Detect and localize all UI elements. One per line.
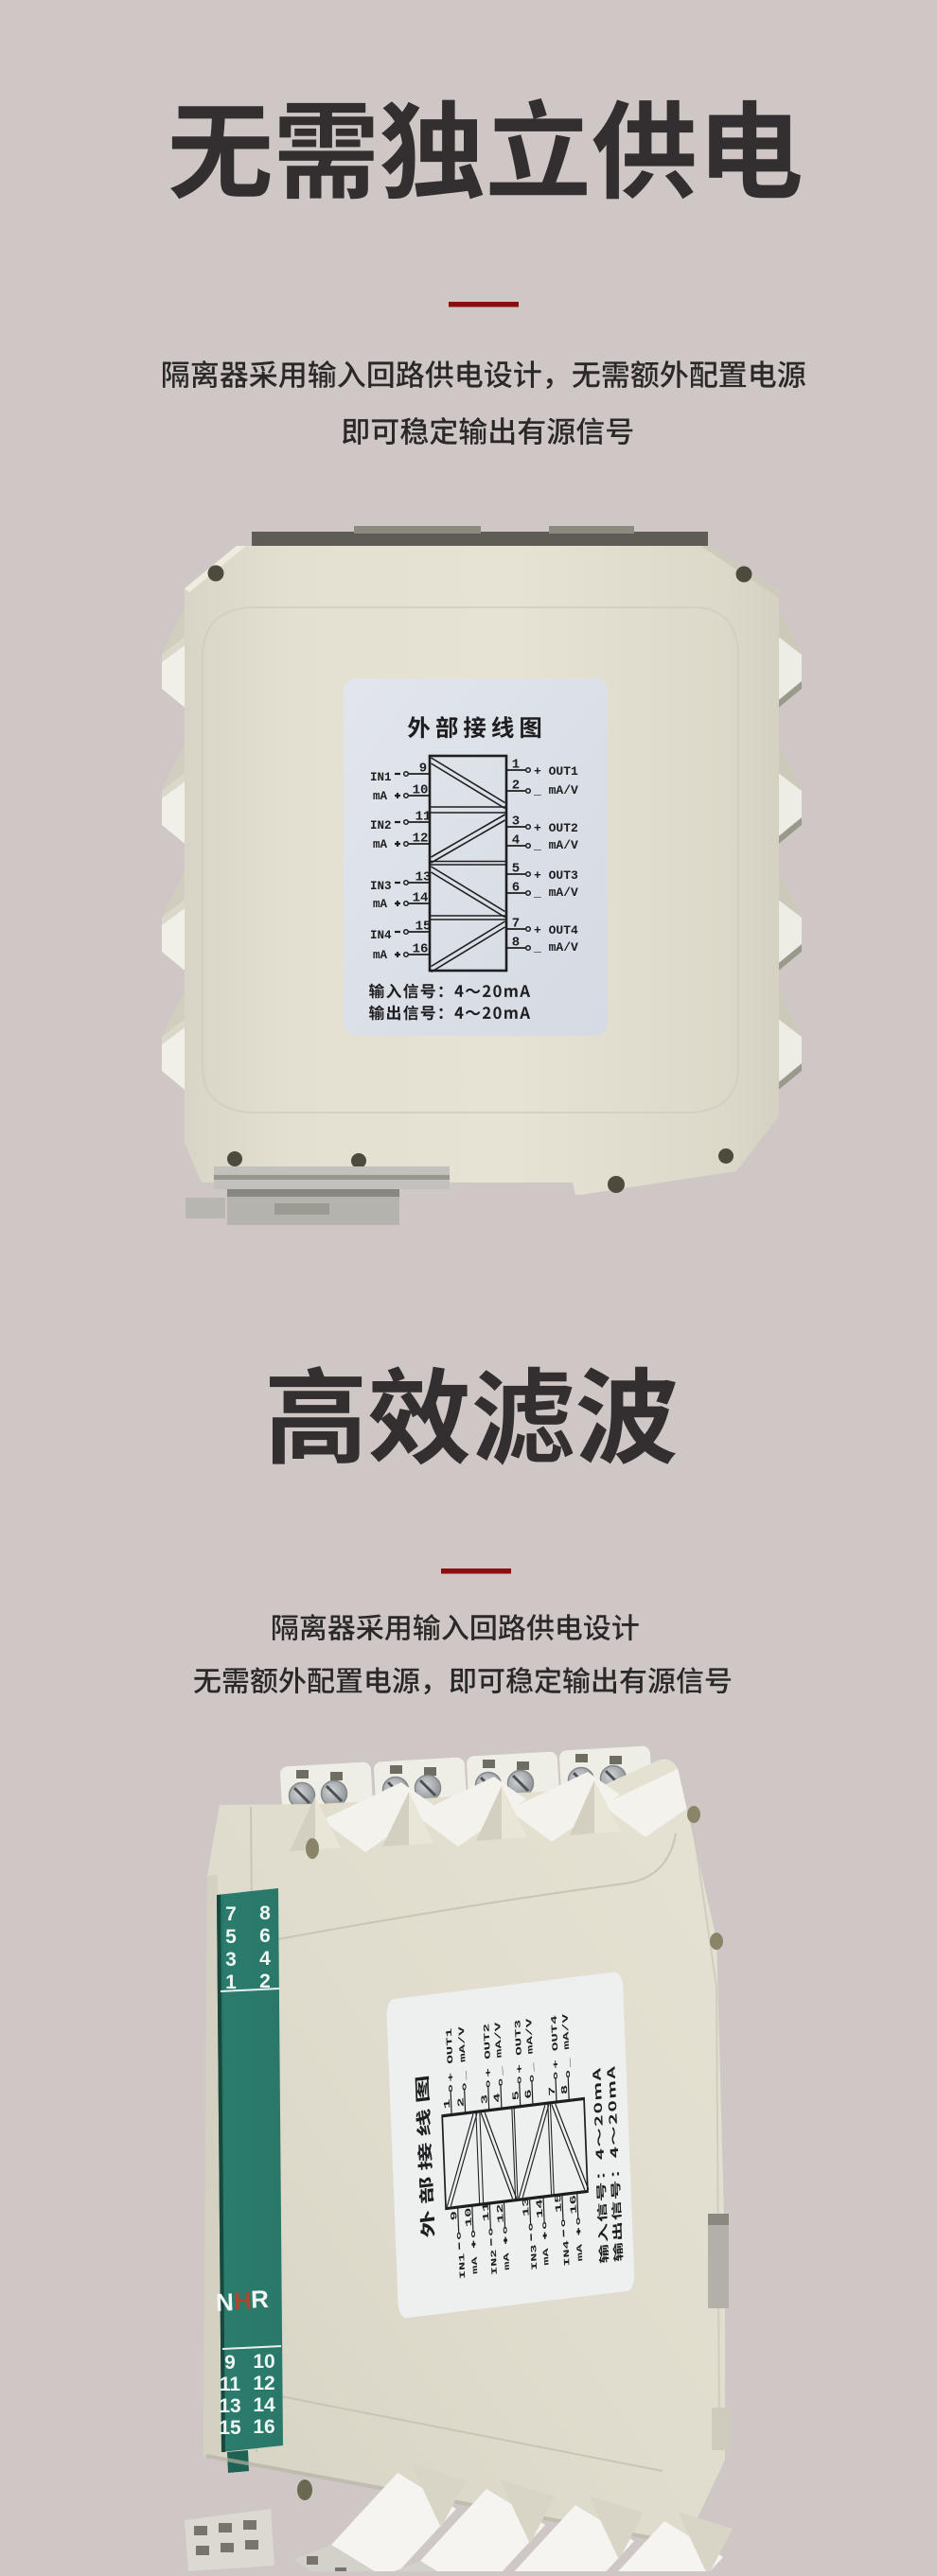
svg-text:12: 12 [253,2373,274,2394]
svg-text:11: 11 [220,2374,241,2395]
svg-text:5: 5 [225,1926,237,1948]
svg-text:13: 13 [219,2395,240,2417]
svg-text:4: 4 [259,1948,271,1970]
svg-text:15: 15 [219,2417,241,2439]
svg-text:7: 7 [225,1903,237,1925]
svg-text:1: 1 [225,1971,237,1993]
svg-text:N: N [216,2287,235,2317]
svg-text:3: 3 [225,1949,237,1971]
svg-text:10: 10 [253,2351,274,2373]
svg-text:R: R [251,2285,270,2314]
svg-text:2: 2 [259,1971,271,1992]
svg-text:H: H [234,2287,253,2316]
svg-text:8: 8 [259,1902,271,1924]
svg-text:9: 9 [224,2352,236,2374]
svg-text:14: 14 [253,2394,275,2416]
svg-text:16: 16 [253,2416,274,2438]
svg-text:6: 6 [259,1925,271,1947]
